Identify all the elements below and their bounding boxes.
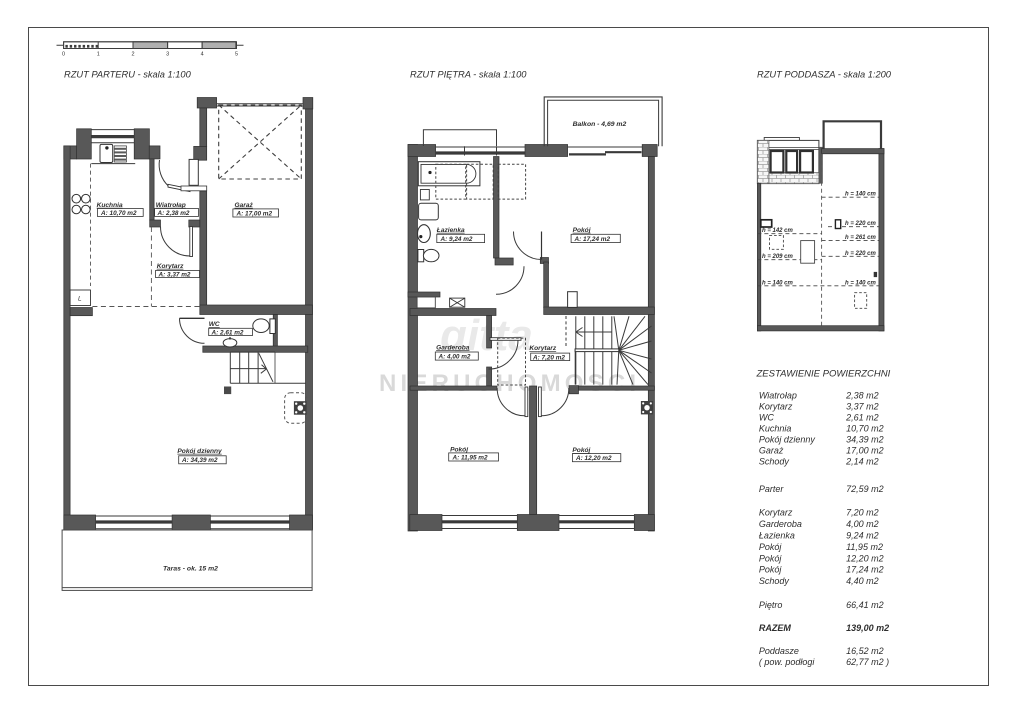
svg-text:0: 0 bbox=[62, 52, 65, 58]
svg-text:Garderoba: Garderoba bbox=[759, 519, 802, 529]
svg-text:A: 3,37 m2: A: 3,37 m2 bbox=[158, 271, 191, 278]
svg-text:Łazienka: Łazienka bbox=[436, 227, 465, 234]
svg-text:17,00 m2: 17,00 m2 bbox=[846, 446, 884, 456]
svg-text:4,40 m2: 4,40 m2 bbox=[846, 576, 879, 586]
svg-text:Kuchnia: Kuchnia bbox=[759, 424, 792, 434]
svg-text:A: 17,24 m2: A: 17,24 m2 bbox=[574, 236, 611, 243]
svg-text:RZUT PIĘTRA - skala 1:100: RZUT PIĘTRA - skala 1:100 bbox=[410, 70, 527, 80]
svg-text:Pokój: Pokój bbox=[759, 554, 783, 564]
svg-text:2,61 m2: 2,61 m2 bbox=[845, 413, 879, 423]
svg-text:A: 17,00 m2: A: 17,00 m2 bbox=[236, 210, 273, 217]
svg-text:A: 12,20 m2: A: 12,20 m2 bbox=[575, 455, 612, 462]
svg-text:Wiatrołap: Wiatrołap bbox=[156, 202, 186, 209]
svg-text:10,70 m2: 10,70 m2 bbox=[846, 424, 884, 434]
svg-text:3: 3 bbox=[166, 52, 169, 58]
svg-text:Pokój: Pokój bbox=[573, 227, 591, 234]
svg-text:A: 2,61 m2: A: 2,61 m2 bbox=[211, 329, 244, 336]
svg-text:Garaż: Garaż bbox=[235, 202, 254, 209]
svg-text:Balkon - 4,69 m2: Balkon - 4,69 m2 bbox=[573, 121, 627, 128]
svg-text:A: 4,00 m2: A: 4,00 m2 bbox=[438, 353, 471, 360]
svg-text:Schody: Schody bbox=[759, 576, 790, 586]
svg-text:2,14 m2: 2,14 m2 bbox=[845, 457, 879, 467]
svg-text:Kuchnia: Kuchnia bbox=[97, 202, 123, 209]
svg-text:h = 220 cm: h = 220 cm bbox=[845, 251, 877, 257]
svg-text:h = 140 cm: h = 140 cm bbox=[762, 280, 794, 286]
svg-text:WC: WC bbox=[759, 413, 774, 423]
svg-text:A: 9,24 m2: A: 9,24 m2 bbox=[440, 236, 473, 243]
svg-text:1: 1 bbox=[97, 52, 100, 58]
svg-text:h = 209 cm: h = 209 cm bbox=[762, 254, 794, 260]
svg-text:Korytarz: Korytarz bbox=[157, 263, 184, 270]
svg-text:Garaż: Garaż bbox=[759, 446, 784, 456]
svg-text:Korytarz: Korytarz bbox=[759, 402, 793, 412]
svg-text:17,24 m2: 17,24 m2 bbox=[846, 564, 884, 574]
svg-text:72,59 m2: 72,59 m2 bbox=[846, 484, 884, 494]
svg-text:RAZEM: RAZEM bbox=[759, 623, 791, 633]
svg-text:Pokój dzienny: Pokój dzienny bbox=[759, 435, 816, 445]
svg-text:RZUT PARTERU - skala 1:100: RZUT PARTERU - skala 1:100 bbox=[64, 70, 192, 80]
svg-text:Korytarz: Korytarz bbox=[759, 507, 793, 517]
svg-text:Schody: Schody bbox=[759, 457, 790, 467]
svg-text:4: 4 bbox=[201, 52, 204, 58]
svg-text:h = 261 cm: h = 261 cm bbox=[845, 235, 877, 241]
svg-text:2: 2 bbox=[132, 52, 135, 58]
svg-text:Garderoba: Garderoba bbox=[436, 344, 470, 351]
svg-text:WC: WC bbox=[209, 321, 220, 328]
svg-text:RZUT PODDASZA - skala 1:200: RZUT PODDASZA - skala 1:200 bbox=[757, 70, 892, 80]
svg-text:L: L bbox=[78, 296, 82, 303]
svg-text:4,00 m2: 4,00 m2 bbox=[846, 519, 879, 529]
svg-text:( pow. podłogi: ( pow. podłogi bbox=[759, 657, 816, 667]
svg-text:16,52 m2: 16,52 m2 bbox=[846, 646, 884, 656]
svg-text:5: 5 bbox=[235, 52, 238, 58]
svg-text:h = 220 cm: h = 220 cm bbox=[845, 221, 877, 227]
svg-text:ZESTAWIENIE POWIERZCHNI: ZESTAWIENIE POWIERZCHNI bbox=[756, 368, 891, 379]
svg-text:h = 142 cm: h = 142 cm bbox=[762, 228, 794, 234]
svg-text:Poddasze: Poddasze bbox=[759, 646, 799, 656]
svg-text:11,95 m2: 11,95 m2 bbox=[846, 542, 883, 552]
svg-text:Parter: Parter bbox=[759, 484, 785, 494]
svg-text:Taras - ok. 15 m2: Taras - ok. 15 m2 bbox=[163, 566, 218, 573]
svg-text:h = 140 cm: h = 140 cm bbox=[845, 280, 877, 286]
svg-text:3,37 m2: 3,37 m2 bbox=[846, 402, 879, 412]
svg-text:Pokój: Pokój bbox=[759, 564, 783, 574]
svg-text:A: 34,39 m2: A: 34,39 m2 bbox=[181, 457, 218, 464]
svg-text:Pokój: Pokój bbox=[572, 447, 590, 454]
svg-text:139,00 m2: 139,00 m2 bbox=[846, 623, 889, 633]
svg-text:34,39 m2: 34,39 m2 bbox=[846, 435, 884, 445]
svg-text:Wiatrołap: Wiatrołap bbox=[759, 391, 797, 401]
svg-text:A: 10,70 m2: A: 10,70 m2 bbox=[100, 210, 137, 217]
svg-text:Piętro: Piętro bbox=[759, 600, 783, 610]
svg-text:12,20 m2: 12,20 m2 bbox=[846, 554, 884, 564]
svg-text:Pokój: Pokój bbox=[759, 542, 783, 552]
svg-text:A: 7,20 m2: A: 7,20 m2 bbox=[532, 354, 565, 361]
svg-text:Łazienka: Łazienka bbox=[759, 530, 795, 540]
svg-text:66,41 m2: 66,41 m2 bbox=[846, 600, 884, 610]
svg-text:9,24 m2: 9,24 m2 bbox=[846, 530, 879, 540]
svg-text:62,77 m2 ): 62,77 m2 ) bbox=[846, 657, 889, 667]
svg-text:h = 140 cm: h = 140 cm bbox=[845, 192, 877, 198]
svg-text:7,20 m2: 7,20 m2 bbox=[846, 507, 879, 517]
svg-text:A: 11,95 m2: A: 11,95 m2 bbox=[452, 454, 488, 461]
svg-text:Korytarz: Korytarz bbox=[529, 345, 556, 352]
svg-text:A: 2,38 m2: A: 2,38 m2 bbox=[157, 210, 190, 217]
svg-text:2,38 m2: 2,38 m2 bbox=[845, 391, 879, 401]
svg-text:NIERUCHOMOSCI: NIERUCHOMOSCI bbox=[379, 370, 640, 397]
svg-text:Pokój dzienny: Pokój dzienny bbox=[177, 448, 222, 455]
